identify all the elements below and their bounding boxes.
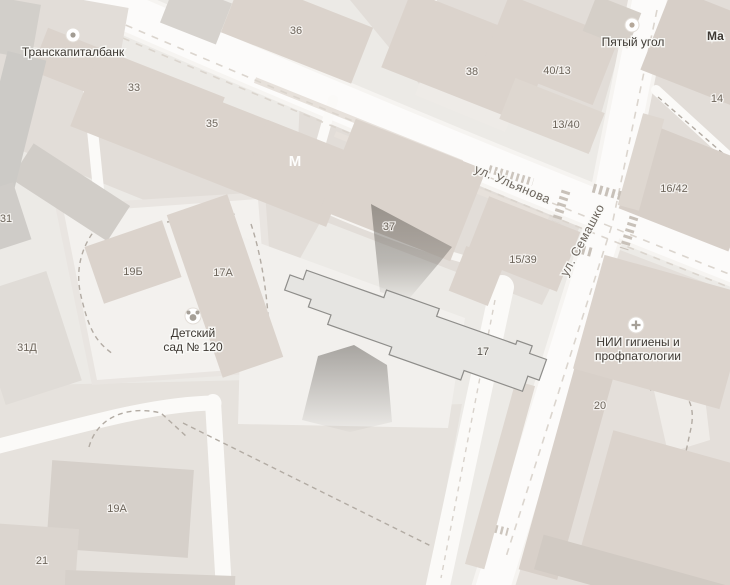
- label-21: 21: [36, 555, 48, 567]
- pyaty-ugol-icon[interactable]: [625, 18, 639, 32]
- label-33: 33: [128, 82, 140, 94]
- kindergarten-icon[interactable]: [185, 308, 201, 324]
- metro-icon[interactable]: М: [289, 153, 302, 170]
- label-13-40: 13/40: [552, 119, 580, 131]
- label-15-39: 15/39: [509, 254, 537, 266]
- poi-label-kindergarten-line1[interactable]: Детский: [171, 326, 215, 340]
- map-canvas[interactable]: М 36 33 35 31 19Б 17А 31Д 38 40/13 13/40…: [0, 0, 730, 585]
- bank-icon[interactable]: [66, 28, 80, 42]
- label-40-13: 40/13: [543, 65, 571, 77]
- label-31: 31: [0, 213, 12, 225]
- label-19b: 19Б: [123, 266, 142, 278]
- label-14: 14: [711, 93, 723, 105]
- poi-label-institute-line2[interactable]: профпатологии: [595, 349, 681, 363]
- label-16-42: 16/42: [660, 183, 688, 195]
- label-17a: 17А: [213, 267, 233, 279]
- alley: [213, 402, 224, 585]
- label-17: 17: [477, 346, 489, 358]
- poi-label-edge[interactable]: Ма: [707, 29, 724, 43]
- label-37: 37: [383, 221, 395, 233]
- label-20: 20: [594, 400, 606, 412]
- poi-label-pyaty-ugol[interactable]: Пятый угол: [602, 35, 665, 49]
- map-viewport[interactable]: М 36 33 35 31 19Б 17А 31Д 38 40/13 13/40…: [0, 0, 730, 585]
- poi-label-bank[interactable]: Транскапиталбанк: [22, 45, 125, 59]
- poi-label-institute-line1[interactable]: НИИ гигиены и: [596, 335, 679, 349]
- label-19a: 19А: [107, 503, 127, 515]
- hospital-icon[interactable]: [628, 317, 644, 333]
- label-36: 36: [290, 25, 302, 37]
- label-38: 38: [466, 66, 478, 78]
- poi-label-kindergarten-line2[interactable]: сад № 120: [163, 340, 223, 354]
- label-35: 35: [206, 118, 218, 130]
- label-31d: 31Д: [17, 342, 37, 354]
